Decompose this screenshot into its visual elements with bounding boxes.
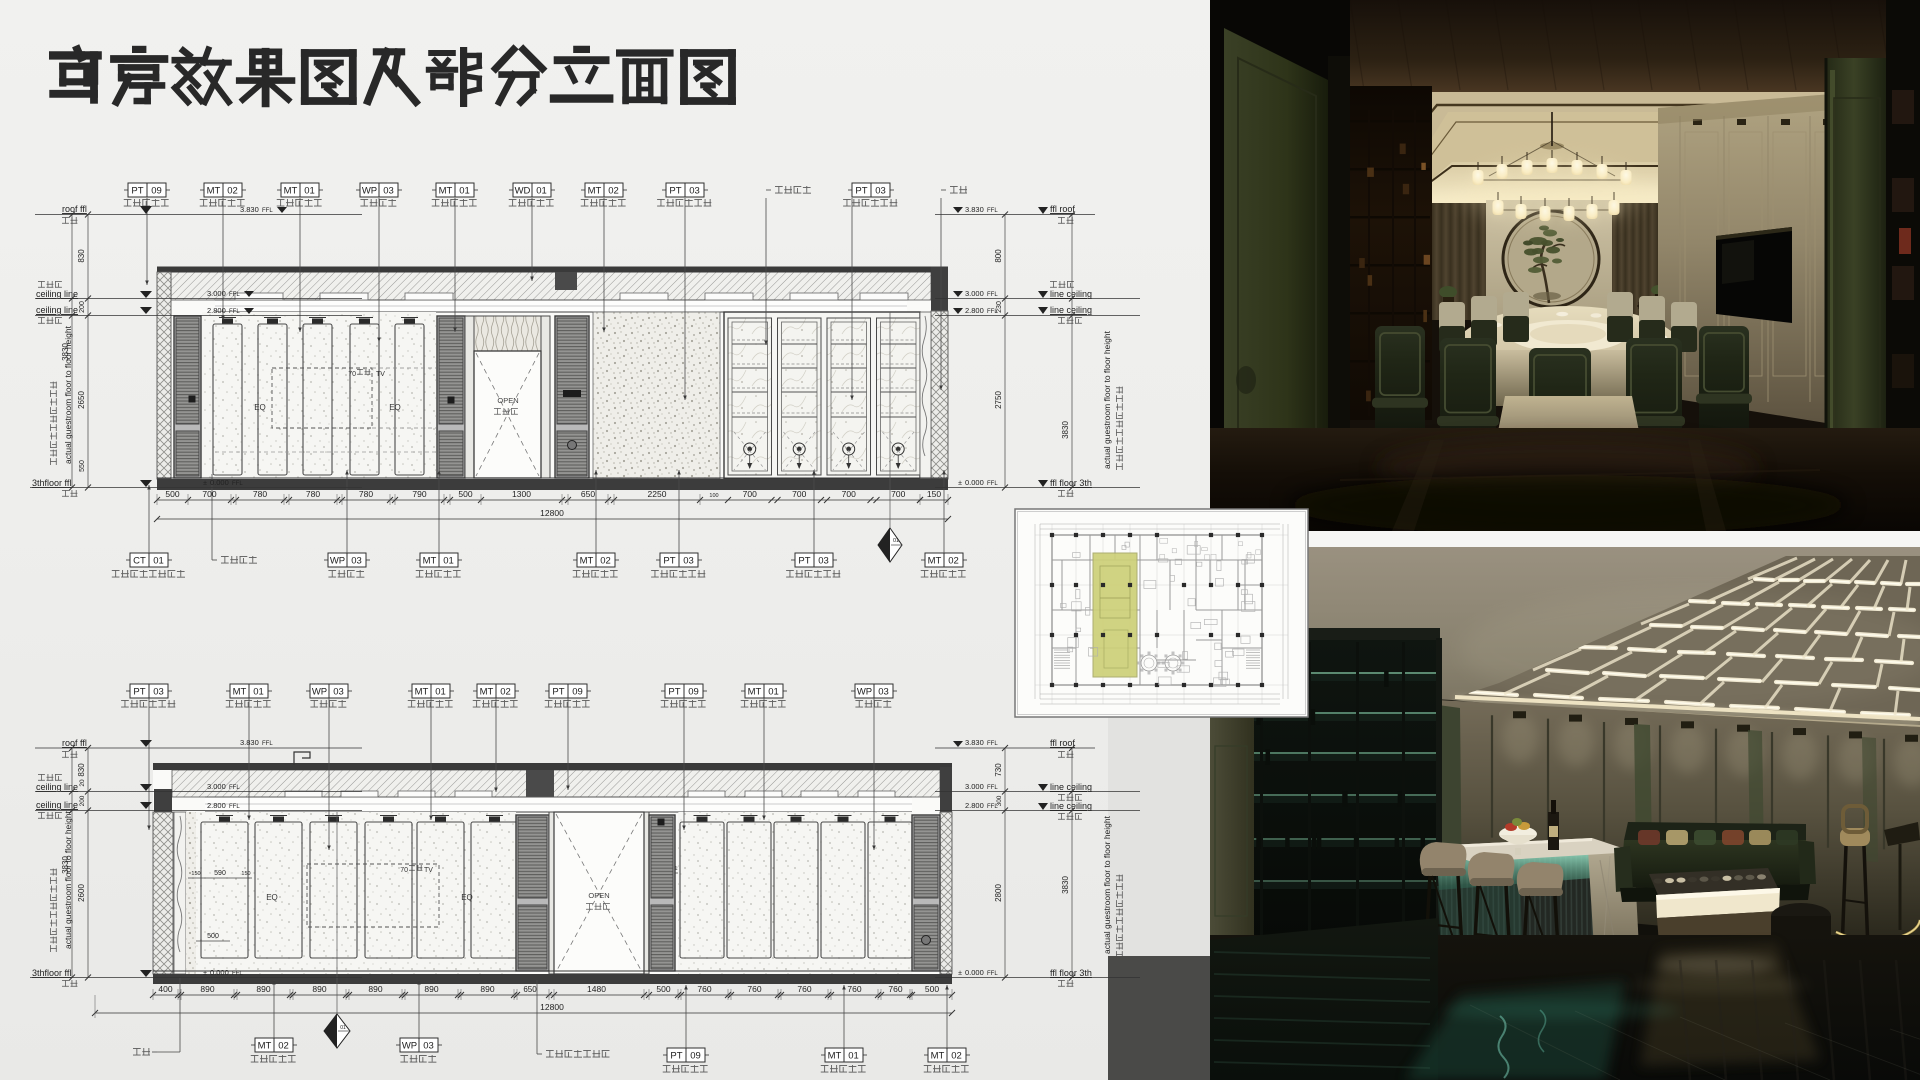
svg-text:03: 03 [423,1041,434,1052]
svg-text:2650: 2650 [77,391,86,409]
svg-text:09: 09 [572,687,583,698]
svg-text:±: ± [958,970,962,977]
svg-text:100: 100 [709,493,718,499]
svg-text:01: 01 [435,687,446,698]
svg-text:200: 200 [79,301,86,313]
svg-text:actual guestroom floor to floo: actual guestroom floor to floor height [63,325,73,464]
svg-text:03: 03 [689,186,700,197]
svg-text:2.800: 2.800 [965,801,984,810]
svg-text:OPEN: OPEN [588,891,609,900]
svg-text:FFL: FFL [232,971,243,977]
svg-text:MT: MT [931,1051,945,1062]
svg-text:2.800: 2.800 [207,306,226,315]
svg-text:line ceiling: line ceiling [1050,801,1092,811]
svg-text:890: 890 [200,984,214,994]
svg-text:3thfloor ffl: 3thfloor ffl [32,478,71,488]
svg-text:03: 03 [818,556,829,567]
svg-text:02: 02 [951,1051,962,1062]
svg-text:FFL: FFL [987,292,998,298]
svg-text:700: 700 [842,489,856,499]
svg-text:FFL: FFL [987,785,998,791]
svg-text:02: 02 [608,186,619,197]
svg-text:actual guestroom floor to floo: actual guestroom floor to floor height [63,810,73,949]
svg-text:FFL: FFL [987,208,998,214]
svg-text:TV: TV [424,867,433,874]
svg-text:0.000: 0.000 [210,478,229,487]
svg-text:20: 20 [79,779,86,787]
svg-text:70: 70 [348,371,356,378]
svg-text:FFL: FFL [987,481,998,487]
svg-text:650: 650 [523,985,537,994]
svg-text:500: 500 [656,984,670,994]
svg-text:780: 780 [306,489,320,499]
svg-text:3.000: 3.000 [965,782,984,791]
svg-text:01: 01 [443,556,454,567]
svg-text:3.830: 3.830 [240,205,259,214]
svg-text:WP: WP [312,687,327,698]
svg-text:CT: CT [133,556,146,567]
svg-text:roof ffl: roof ffl [62,738,87,748]
svg-text:ffl floor 3th: ffl floor 3th [1050,968,1092,978]
svg-text:MT: MT [439,186,453,197]
svg-text:150: 150 [927,489,941,499]
svg-text:12800: 12800 [540,1002,564,1012]
svg-text:700: 700 [743,489,757,499]
svg-text:PT: PT [670,1051,682,1062]
svg-text:12800: 12800 [540,508,564,518]
svg-text:780: 780 [253,489,267,499]
svg-text:actual guestroom floor to floo: actual guestroom floor to floor height [1102,815,1112,954]
svg-text:MT: MT [588,186,602,197]
svg-text:150: 150 [241,871,250,877]
svg-text:500: 500 [207,933,219,940]
svg-text:MT: MT [748,687,762,698]
svg-text:02: 02 [600,556,611,567]
svg-text:03: 03 [333,687,344,698]
svg-text:0.000: 0.000 [965,478,984,487]
svg-text:03: 03 [153,687,164,698]
svg-text:FFL: FFL [229,309,240,315]
svg-text:MT: MT [580,556,594,567]
svg-text:3830: 3830 [1061,421,1070,439]
svg-text:760: 760 [797,984,811,994]
svg-text:780: 780 [359,489,373,499]
svg-text:1300: 1300 [512,489,531,499]
svg-text:0.000: 0.000 [210,968,229,977]
svg-text:01: 01 [459,186,470,197]
svg-text:EQ: EQ [461,893,473,902]
svg-text:PT: PT [855,186,867,197]
svg-text:70: 70 [400,867,408,874]
svg-text:03: 03 [383,186,394,197]
svg-text:890: 890 [256,984,270,994]
svg-text:03: 03 [351,556,362,567]
svg-text:FFL: FFL [229,292,240,298]
svg-text:01: 01 [768,687,779,698]
svg-text:890: 890 [480,984,494,994]
svg-text:700: 700 [891,489,905,499]
svg-text:3.000: 3.000 [207,782,226,791]
svg-text:MT: MT [207,186,221,197]
svg-text:±: ± [203,480,207,487]
svg-text:3830: 3830 [1061,876,1070,894]
svg-text:WP: WP [330,556,345,567]
svg-text:230: 230 [996,301,1003,313]
svg-text:02: 02 [500,687,511,698]
svg-text:760: 760 [697,984,711,994]
svg-text:line ceiling: line ceiling [1050,289,1092,299]
svg-text:FFL: FFL [232,481,243,487]
svg-text:650: 650 [581,489,595,499]
svg-text:760: 760 [847,984,861,994]
svg-text:ffl roof: ffl roof [1050,204,1075,214]
svg-text:890: 890 [424,984,438,994]
svg-text:01: 01 [893,538,899,544]
svg-text:TV: TV [376,371,385,378]
svg-text:01: 01 [304,186,315,197]
svg-text:±: ± [203,970,207,977]
svg-text:400: 400 [158,984,172,994]
svg-text:OPEN: OPEN [497,396,518,405]
svg-text:line ceiling: line ceiling [1050,305,1092,315]
svg-text:300: 300 [996,795,1003,806]
svg-text:2800: 2800 [994,884,1003,902]
svg-text:3.830: 3.830 [965,205,984,214]
svg-text:01: 01 [340,1025,346,1031]
svg-text:150: 150 [191,871,200,877]
svg-text:890: 890 [312,984,326,994]
svg-text:09: 09 [688,687,699,698]
svg-text:02: 02 [948,556,959,567]
svg-text:FFL: FFL [987,971,998,977]
svg-text:±: ± [958,480,962,487]
svg-text:PT: PT [798,556,810,567]
svg-text:830: 830 [77,763,86,777]
svg-text:2.800: 2.800 [965,306,984,315]
svg-text:890: 890 [368,984,382,994]
svg-text:03: 03 [875,186,886,197]
svg-text:01: 01 [848,1051,859,1062]
svg-text:actual guestroom floor to floo: actual guestroom floor to floor height [1102,330,1112,469]
svg-text:MT: MT [233,687,247,698]
svg-text:WP: WP [402,1041,417,1052]
svg-text:550: 550 [79,460,86,472]
svg-text:700: 700 [202,489,216,499]
svg-text:2600: 2600 [77,884,86,902]
svg-text:790: 790 [412,489,426,499]
svg-text:3.000: 3.000 [965,289,984,298]
svg-text:500: 500 [458,489,472,499]
svg-text:760: 760 [888,984,902,994]
svg-text:03: 03 [878,687,889,698]
svg-text:MT: MT [258,1041,272,1052]
svg-text:0.000: 0.000 [965,968,984,977]
svg-text:FFL: FFL [229,785,240,791]
svg-text:500: 500 [165,489,179,499]
svg-text:730: 730 [994,763,1003,777]
svg-text:EQ: EQ [266,893,278,902]
svg-text:3.000: 3.000 [207,289,226,298]
svg-text:2.800: 2.800 [207,801,226,810]
svg-text:MT: MT [415,687,429,698]
svg-text:01: 01 [153,556,164,567]
svg-text:3.830: 3.830 [965,738,984,747]
svg-text:MT: MT [928,556,942,567]
svg-text:PT: PT [663,556,675,567]
svg-text:EQ: EQ [254,403,266,412]
svg-text:PT: PT [669,186,681,197]
svg-text:FFL: FFL [262,208,273,214]
svg-text:FFL: FFL [229,804,240,810]
svg-text:200: 200 [79,795,86,806]
svg-text:2250: 2250 [648,489,667,499]
svg-text:3.830: 3.830 [240,738,259,747]
svg-text:1480: 1480 [587,984,606,994]
svg-text:WP: WP [362,186,377,197]
svg-text:09: 09 [151,186,162,197]
svg-text:09: 09 [690,1051,701,1062]
svg-text:PT: PT [131,186,143,197]
svg-text:03: 03 [683,556,694,567]
svg-text:590: 590 [214,870,226,877]
svg-text:PT: PT [133,687,145,698]
svg-text:800: 800 [994,249,1003,263]
svg-text:WD: WD [515,186,531,197]
svg-text:MT: MT [423,556,437,567]
svg-text:02: 02 [278,1041,289,1052]
svg-text:WP: WP [857,687,872,698]
svg-text:700: 700 [792,489,806,499]
svg-text:3thfloor ffl: 3thfloor ffl [32,968,71,978]
svg-text:FFL: FFL [987,741,998,747]
svg-text:MT: MT [828,1051,842,1062]
svg-text:MT: MT [284,186,298,197]
svg-text:02: 02 [227,186,238,197]
svg-text:MT: MT [480,687,494,698]
svg-text:760: 760 [747,984,761,994]
svg-text:01: 01 [536,186,547,197]
svg-text:ffl floor 3th: ffl floor 3th [1050,478,1092,488]
svg-text:01: 01 [253,687,264,698]
svg-text:2750: 2750 [994,391,1003,409]
svg-text:500: 500 [925,984,939,994]
svg-text:FFL: FFL [262,741,273,747]
svg-text:830: 830 [77,249,86,263]
svg-text:EQ: EQ [389,403,401,412]
svg-text:PT: PT [552,687,564,698]
svg-text:PT: PT [668,687,680,698]
svg-text:ffl roof: ffl roof [1050,738,1075,748]
svg-text:line ceiling: line ceiling [1050,782,1092,792]
